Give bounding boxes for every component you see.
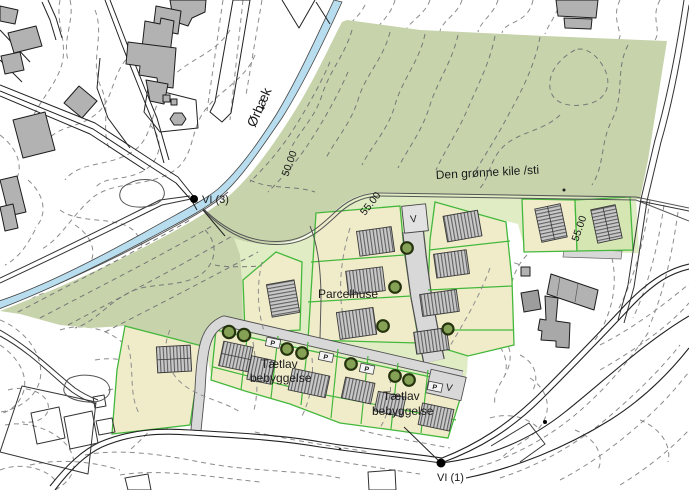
svg-text:bebyggelse: bebyggelse	[250, 371, 312, 385]
svg-text:VI (3): VI (3)	[202, 194, 229, 206]
svg-text:VI (1): VI (1)	[437, 472, 464, 484]
svg-text:Tætlav: Tætlav	[383, 389, 420, 403]
svg-text:Tætlav: Tætlav	[261, 357, 298, 371]
svg-text:bebyggelse: bebyggelse	[372, 404, 434, 418]
svg-text:Parcelhuse: Parcelhuse	[318, 287, 378, 301]
